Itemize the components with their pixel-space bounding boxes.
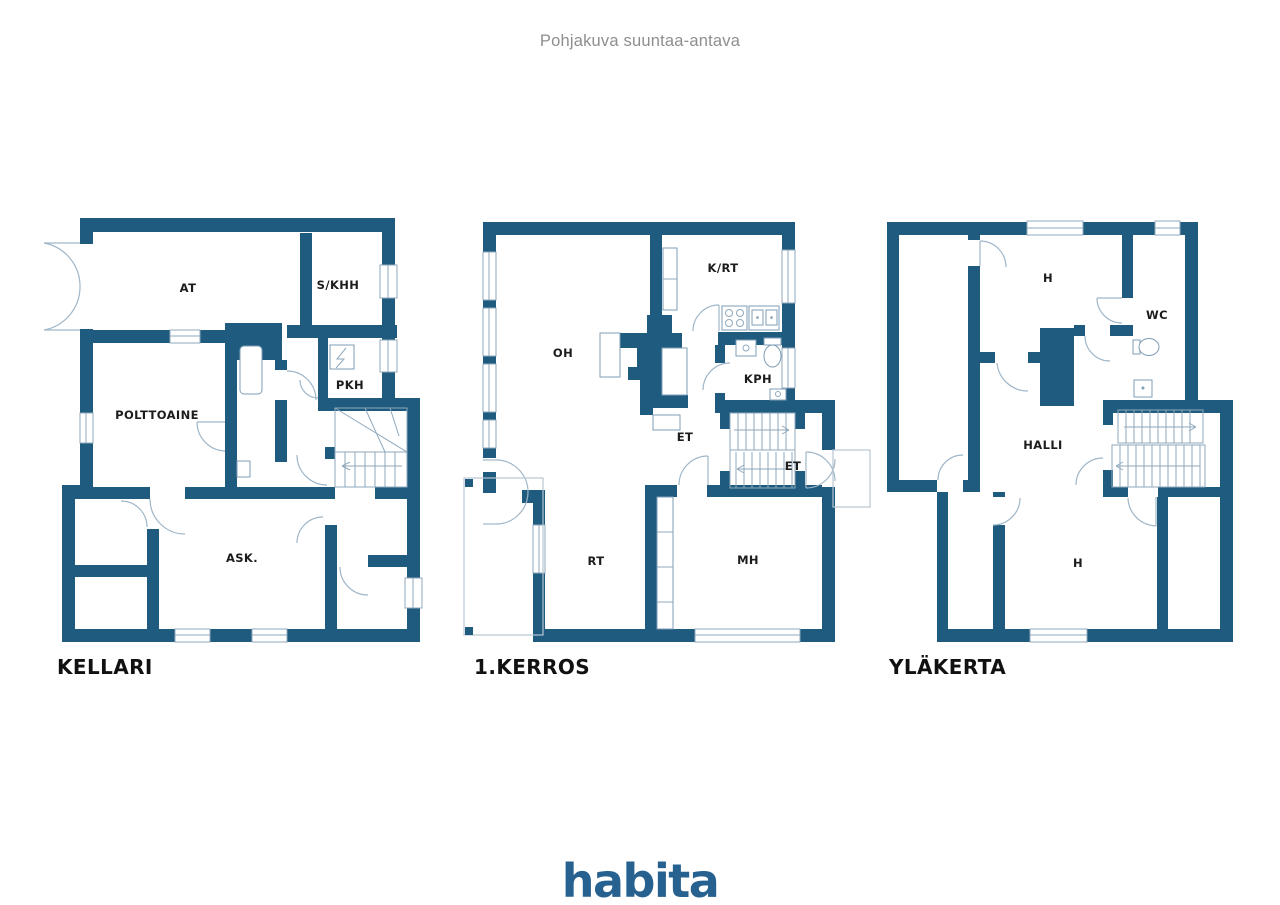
room-label-krt: K/RT xyxy=(708,261,739,275)
room-label-skhh: S/KHH xyxy=(317,278,360,292)
wc-sink-icon xyxy=(1134,380,1152,397)
room-label-oh: OH xyxy=(553,346,573,360)
floor-plan-canvas: AT S/KHH PKH POLTTOAINE ASK. xyxy=(0,0,1280,905)
room-label-halli: HALLI xyxy=(1023,438,1062,452)
floorplan-page: Pohjakuva suuntaa-antava xyxy=(0,0,1280,905)
room-label-kph: KPH xyxy=(744,372,772,386)
floor-plan-kellari: AT S/KHH PKH POLTTOAINE ASK. xyxy=(44,218,422,642)
room-label-et-2: ET xyxy=(785,459,802,473)
habita-logo: habita xyxy=(0,854,1280,905)
room-label-wc: WC xyxy=(1146,308,1168,322)
kellari-windows xyxy=(80,265,422,642)
hearth-outline xyxy=(600,333,620,377)
room-label-h-bottom: H xyxy=(1073,556,1083,570)
kellari-stairs-icon xyxy=(335,408,407,487)
room-label-polttoaine: POLTTOAINE xyxy=(115,408,199,422)
toilet-icon xyxy=(764,338,781,367)
chimney-niche xyxy=(662,348,687,395)
ylakerta-stairs-icon xyxy=(1112,410,1205,487)
entry-porch-outline xyxy=(833,450,870,507)
kerros-stairs-icon xyxy=(730,413,795,488)
room-label-ask: ASK. xyxy=(226,551,258,565)
room-label-pkh: PKH xyxy=(336,378,364,392)
washbasin-icon xyxy=(770,389,786,400)
room-label-at: AT xyxy=(180,281,197,295)
room-label-rt: RT xyxy=(588,554,605,568)
kitchen-sink-icon xyxy=(749,306,779,330)
chimney-foot-niche xyxy=(653,415,680,430)
plan-title-1kerros: 1.KERROS xyxy=(474,655,590,679)
plan-title-kellari: KELLARI xyxy=(57,655,153,679)
electrical-panel-icon xyxy=(330,345,354,369)
room-label-et-1: ET xyxy=(677,430,694,444)
floor-plan-1kerros: OH K/RT KPH ET ET RT MH xyxy=(464,222,870,642)
wardrobe-icon xyxy=(657,497,673,629)
plan-title-ylakerta: YLÄKERTA xyxy=(889,655,1006,679)
wc-toilet-icon xyxy=(1133,339,1159,356)
room-label-h-top: H xyxy=(1043,271,1053,285)
floor-plan-ylakerta: H WC HALLI H xyxy=(887,221,1233,642)
boiler-icon xyxy=(237,346,262,477)
room-label-mh: MH xyxy=(737,553,759,567)
kellari-walls xyxy=(62,218,420,642)
ylakerta-walls xyxy=(887,222,1233,642)
bathroom-sink-icon xyxy=(736,340,756,356)
cabinet-icon xyxy=(663,248,677,310)
stove-icon xyxy=(722,306,747,330)
